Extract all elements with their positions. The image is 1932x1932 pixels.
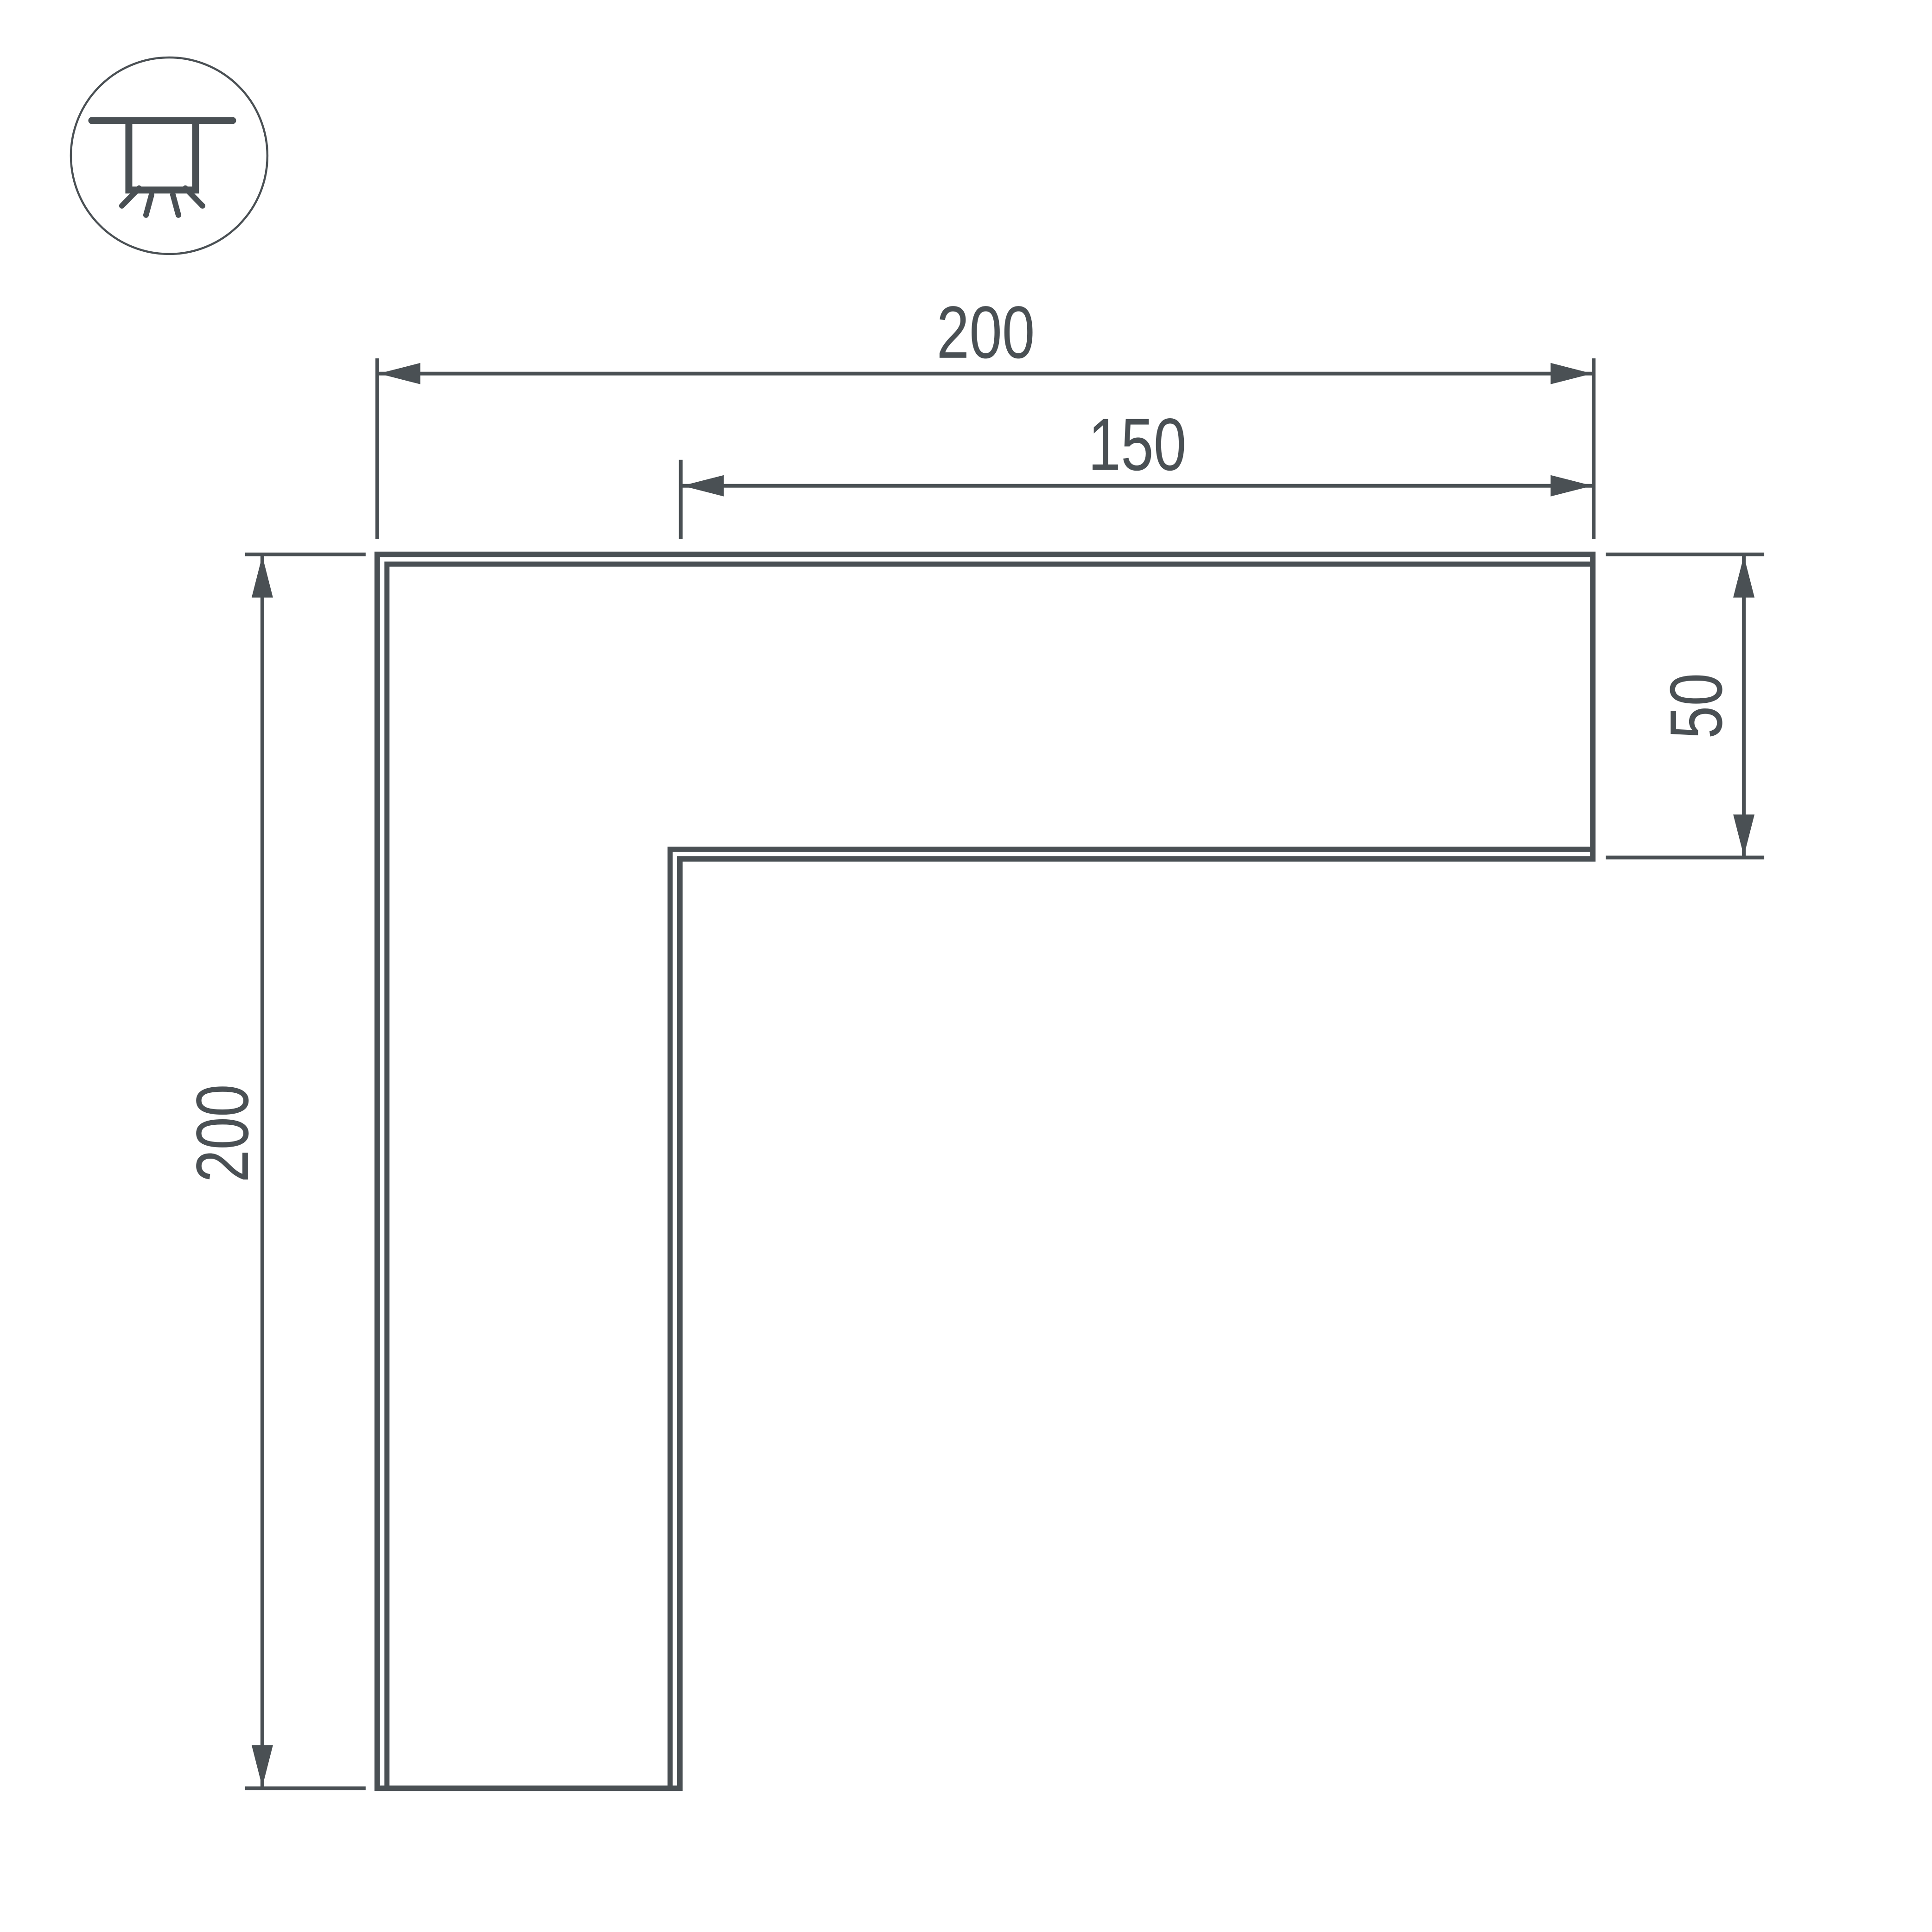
- icon-circle-border: [70, 57, 267, 254]
- arrowhead-down: [1733, 815, 1754, 856]
- arrowhead-left: [682, 475, 724, 497]
- arrowhead-up: [251, 556, 273, 598]
- arrowhead-right: [1551, 363, 1592, 384]
- recessed-ceiling-light-icon: [70, 57, 267, 254]
- profile-outer-edge: [377, 555, 1592, 1788]
- profile-inner-edge-bottom-right: [670, 849, 1591, 1787]
- arrowhead-down: [251, 1745, 273, 1787]
- profile-inner-edge-top-left: [387, 564, 1590, 1786]
- dimension-label-arm-height: 50: [1654, 673, 1737, 739]
- technical-drawing: 200 150 50 200: [0, 0, 1932, 1932]
- dimension-label-top-width: 200: [936, 291, 1035, 374]
- dimension-label-inner-width: 150: [1088, 403, 1186, 486]
- dimension-inner-width: 150: [680, 403, 1594, 539]
- dimension-left-height: 200: [180, 555, 365, 1788]
- dimension-arm-height: 50: [1606, 555, 1764, 858]
- drawing-canvas: 200 150 50 200: [0, 0, 1932, 1932]
- icon-fixture-body: [128, 121, 195, 190]
- dimension-top-width: 200: [377, 291, 1593, 539]
- arrowhead-left: [378, 363, 420, 384]
- arrowhead-up: [1733, 556, 1754, 598]
- profile-outline: [377, 555, 1592, 1788]
- arrowhead-right: [1551, 475, 1592, 497]
- dimension-label-left-height: 200: [180, 1084, 263, 1182]
